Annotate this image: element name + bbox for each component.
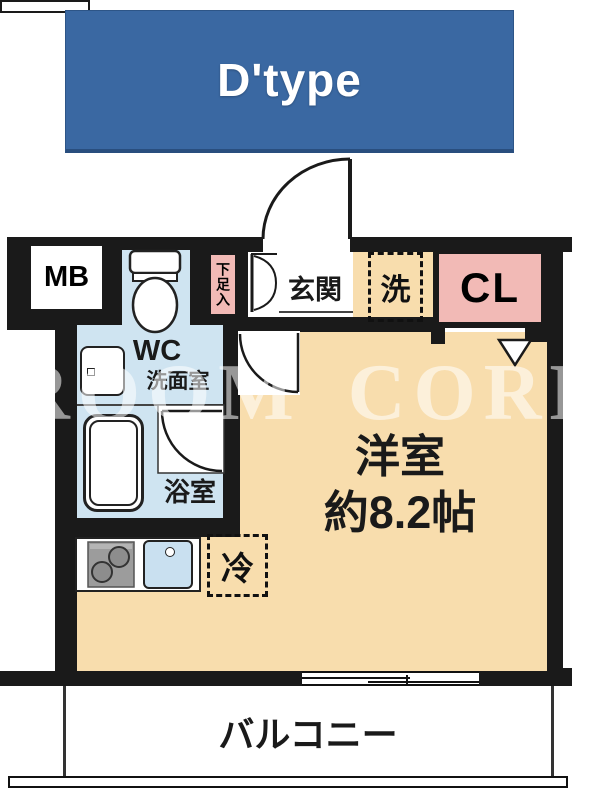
entry-door-icon xyxy=(258,155,355,241)
closet: CL xyxy=(433,248,547,328)
bathtub-inner-line xyxy=(89,420,138,506)
washbasin-faucet-icon xyxy=(87,368,95,376)
sink-faucet-icon xyxy=(165,547,175,557)
washer-space: 洗 xyxy=(368,252,423,322)
bathtub-icon xyxy=(83,414,144,512)
washbasin-icon xyxy=(80,346,125,396)
main-room-size-label: 約8.2帖 xyxy=(280,490,520,535)
floorplan-canvas: D'type MB 下足入 CL 洗 冷 xyxy=(0,0,600,800)
shoe-cabinet-label: 下足入 xyxy=(211,255,235,314)
bathroom-door-icon xyxy=(158,405,224,473)
balcony-railing-bottom xyxy=(8,776,568,788)
bathroom-label: 浴室 xyxy=(158,472,222,509)
wc-label: WC xyxy=(127,335,187,368)
wall-bottom-right xyxy=(479,671,572,686)
refrigerator-space: 冷 xyxy=(207,534,268,597)
sliding-window-icon xyxy=(302,671,479,686)
meter-box-label: MB xyxy=(31,246,102,309)
window-sash-line xyxy=(302,677,410,679)
floorplan-type-title: D'type xyxy=(66,11,513,149)
stove-icon xyxy=(88,542,134,587)
washroom-label: 洗面室 xyxy=(134,365,222,395)
wall-left-lower xyxy=(55,325,77,675)
wall-bottom-left xyxy=(0,671,302,686)
toilet-icon xyxy=(124,249,186,335)
main-room-door-icon xyxy=(238,331,300,395)
kitchen-sink-icon xyxy=(143,540,193,589)
refrigerator-space-label: 冷 xyxy=(221,542,254,590)
meter-box: MB xyxy=(25,240,108,315)
balcony-label: バルコニー xyxy=(63,706,553,758)
shoe-cabinet-door-icon xyxy=(249,253,279,313)
main-room-name-label: 洋室 xyxy=(300,434,500,479)
closet-door-triangle-icon xyxy=(497,338,533,367)
window-sash-joint xyxy=(406,675,408,684)
floorplan-type-banner: D'type xyxy=(65,10,514,153)
window-sash-line xyxy=(368,681,479,683)
wall-right xyxy=(547,245,563,683)
shoe-cabinet: 下足入 xyxy=(208,252,238,317)
closet-label: CL xyxy=(439,254,541,322)
entrance-label: 玄関 xyxy=(283,268,347,307)
washer-space-label: 洗 xyxy=(381,265,411,309)
